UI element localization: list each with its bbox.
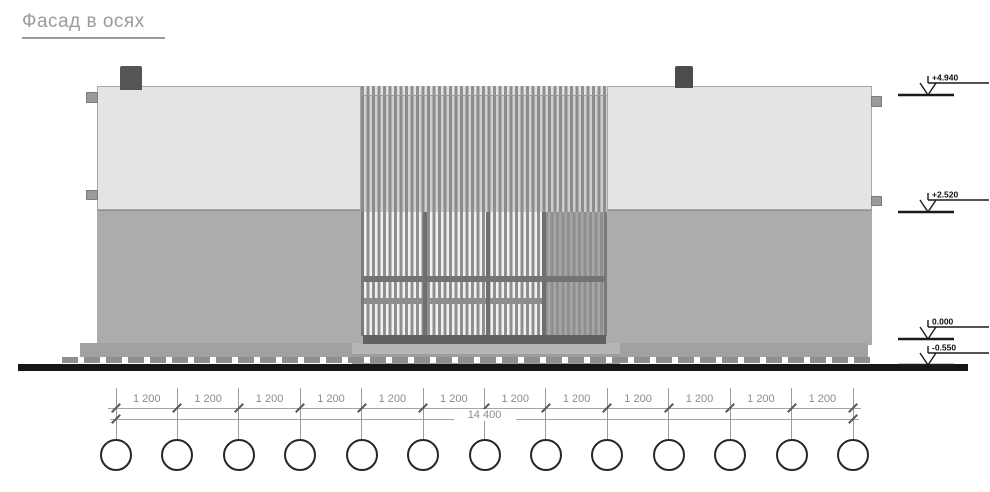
dimension-segment-label: 1 200 [735, 393, 787, 405]
axis-circle [223, 439, 255, 471]
ground-line [18, 364, 968, 371]
elevation-value: -0.550 [932, 343, 956, 353]
axis-circle [161, 439, 193, 471]
mullion-post [423, 212, 427, 336]
louver-screen-lower-right [545, 212, 607, 336]
extension-line [668, 388, 669, 441]
extension-line [607, 388, 608, 441]
axis-circle [407, 439, 439, 471]
extension-line [791, 388, 792, 441]
axis-circle [653, 439, 685, 471]
extension-line [423, 388, 424, 441]
wall-bracket [86, 190, 98, 200]
elevation-marker: +4.940 [898, 69, 990, 99]
dimension-total-label: 14 400 [454, 409, 516, 421]
wall-bracket [871, 196, 882, 206]
extension-line [238, 388, 239, 441]
mullion-post [542, 212, 546, 336]
dimension-segment-label: 1 200 [182, 393, 234, 405]
axis-circle [284, 439, 316, 471]
extension-line [300, 388, 301, 441]
extension-line [730, 388, 731, 441]
axis-circle [714, 439, 746, 471]
extension-line [853, 388, 854, 441]
glazing-rail-lower [363, 298, 545, 304]
axis-circle [530, 439, 562, 471]
dimension-segment-label: 1 200 [612, 393, 664, 405]
upper-panel-left [97, 86, 361, 210]
extension-line [361, 388, 362, 441]
glazing-rail-upper [363, 276, 606, 282]
dimension-segment-label: 1 200 [673, 393, 725, 405]
elevation-value: +4.940 [932, 73, 959, 83]
axis-circle [837, 439, 869, 471]
foundation-hatch [62, 357, 870, 363]
dimension-segment-label: 1 200 [428, 393, 480, 405]
door-sill [363, 335, 606, 344]
elevation-marker: -0.550 [898, 339, 990, 369]
elevation-marker: +2.520 [898, 186, 990, 216]
mullion-post [361, 212, 364, 336]
dimension-segment-label: 1 200 [366, 393, 418, 405]
axis-circle [346, 439, 378, 471]
extension-line [116, 388, 117, 441]
chimney-left [120, 66, 142, 90]
axis-circle [100, 439, 132, 471]
dimension-segment-label: 1 200 [305, 393, 357, 405]
mullion-post [486, 212, 490, 336]
drawing-sheet: Фасад в осях 1 2001 2001 2001 2001 2001 … [0, 0, 990, 492]
wall-bracket [871, 96, 882, 107]
louver-screen-upper [361, 86, 607, 212]
louver-screen-cap [361, 86, 607, 96]
drawing-title: Фасад в осях [22, 11, 165, 39]
dimension-segment-label: 1 200 [244, 393, 296, 405]
extension-line [545, 388, 546, 441]
elevation-value: 0.000 [932, 317, 954, 327]
axis-circle [776, 439, 808, 471]
extension-line [177, 388, 178, 441]
elevation-value: +2.520 [932, 190, 959, 200]
dimension-segment-label: 1 200 [489, 393, 541, 405]
axis-circle [591, 439, 623, 471]
dimension-segment-label: 1 200 [551, 393, 603, 405]
mullion-post [604, 212, 607, 336]
dimension-segment-label: 1 200 [121, 393, 173, 405]
entrance-porch [352, 343, 620, 354]
axis-circle [469, 439, 501, 471]
wall-bracket [86, 92, 98, 103]
upper-panel-right [607, 86, 872, 210]
chimney-right [675, 66, 693, 88]
dimension-segment-label: 1 200 [796, 393, 848, 405]
